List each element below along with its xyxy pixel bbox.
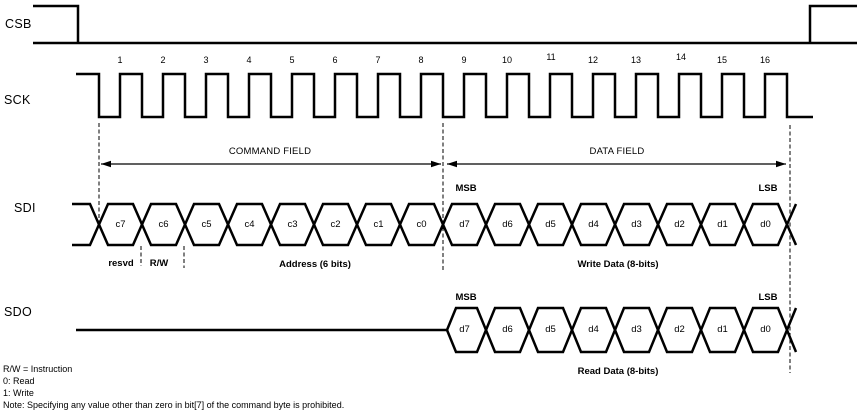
sdi-bit-cell: c7	[115, 219, 125, 230]
footnote-read: 0: Read	[3, 376, 35, 386]
sdo-bit-cell: d5	[545, 324, 556, 335]
sdo-bit-cell: d7	[459, 324, 470, 335]
command-field-arrowhead-left	[101, 161, 111, 167]
sdi-bit-cell: d2	[674, 219, 685, 230]
footnote-write: 1: Write	[3, 388, 34, 398]
footnote-rw-instruction: R/W = Instruction	[3, 364, 72, 374]
sdo-msb-label: MSB	[455, 292, 476, 303]
sck-cycle-number: 14	[676, 52, 686, 62]
sdi-bit-cell: d4	[588, 219, 599, 230]
sdi-bit-cell: c6	[158, 219, 168, 230]
sdi-bit-cell: d7	[459, 219, 470, 230]
sdi-address-label: Address (6 bits)	[279, 259, 351, 270]
spi-timing-diagram: CSB SCK SDI SDO 1 2 3 4 5 6 7 8 9 10 11 …	[0, 0, 857, 413]
sck-cycle-number: 12	[588, 55, 598, 65]
sdo-bit-cell: d6	[502, 324, 513, 335]
waveform-canvas	[0, 0, 857, 413]
command-field-arrowhead-right	[431, 161, 441, 167]
sck-cycle-number: 6	[332, 55, 337, 65]
sdo-bit-cell: d2	[674, 324, 685, 335]
data-field-arrowhead-left	[447, 161, 457, 167]
csb-high-start	[33, 6, 78, 43]
footnote-bit7-prohibited: Note: Specifying any value other than ze…	[3, 400, 344, 410]
sdo-read-data-label: Read Data (8-bits)	[578, 366, 659, 377]
sck-cycle-number: 11	[546, 52, 555, 62]
sck-cycle-number: 15	[717, 55, 727, 65]
signal-label-sck: SCK	[4, 93, 31, 107]
sck-cycle-number: 2	[160, 55, 165, 65]
sdi-bit-cell: d0	[760, 219, 771, 230]
sdi-msb-label: MSB	[455, 183, 476, 194]
signal-label-sdi: SDI	[14, 201, 36, 215]
sdi-bus-waveform	[72, 204, 796, 245]
sck-clock-trace	[76, 74, 813, 117]
csb-waveform	[33, 6, 857, 43]
data-field-arrowhead-right	[776, 161, 786, 167]
sdo-bit-cell: d1	[717, 324, 728, 335]
data-field-label: DATA FIELD	[590, 146, 645, 157]
sdi-bit-cell: d5	[545, 219, 556, 230]
sck-waveform	[76, 74, 813, 117]
sdi-bit-cell: c5	[201, 219, 211, 230]
sdo-lsb-label: LSB	[759, 292, 778, 303]
sdi-bit-cell: c2	[330, 219, 340, 230]
sdi-bit-cell: c1	[373, 219, 383, 230]
sdi-resvd-label: resvd	[108, 258, 133, 269]
sdi-bit-cell: d3	[631, 219, 642, 230]
sdi-bit-cell: c3	[287, 219, 297, 230]
sck-cycle-number: 4	[246, 55, 251, 65]
sck-cycle-number: 3	[203, 55, 208, 65]
sck-cycle-number: 1	[117, 55, 122, 65]
dashed-guides	[99, 123, 790, 373]
sck-cycle-number: 16	[760, 55, 770, 65]
sdi-write-data-label: Write Data (8-bits)	[577, 259, 658, 270]
sdo-bit-cell: d0	[760, 324, 771, 335]
sck-cycle-number: 10	[502, 55, 512, 65]
sdi-bit-cell: c0	[416, 219, 426, 230]
signal-label-csb: CSB	[5, 17, 32, 31]
sdi-bus-trace-b	[72, 204, 796, 245]
sdi-bit-cell: c4	[244, 219, 254, 230]
sdi-bit-cell: d1	[717, 219, 728, 230]
sck-cycle-number: 7	[375, 55, 380, 65]
sck-cycle-number: 13	[631, 55, 641, 65]
sdi-lsb-label: LSB	[759, 183, 778, 194]
command-field-label: COMMAND FIELD	[229, 146, 311, 157]
sdo-bit-cell: d3	[631, 324, 642, 335]
sdo-bus-waveform	[76, 308, 796, 352]
sck-cycle-number: 8	[418, 55, 423, 65]
signal-label-sdo: SDO	[4, 305, 32, 319]
sdi-bit-cell: d6	[502, 219, 513, 230]
sdi-rw-label: R/W	[150, 258, 168, 269]
sdo-bit-cell: d4	[588, 324, 599, 335]
sck-cycle-number: 9	[461, 55, 466, 65]
sck-cycle-number: 5	[289, 55, 294, 65]
sdi-bus-trace-a	[72, 204, 796, 245]
csb-high-end	[810, 6, 857, 43]
